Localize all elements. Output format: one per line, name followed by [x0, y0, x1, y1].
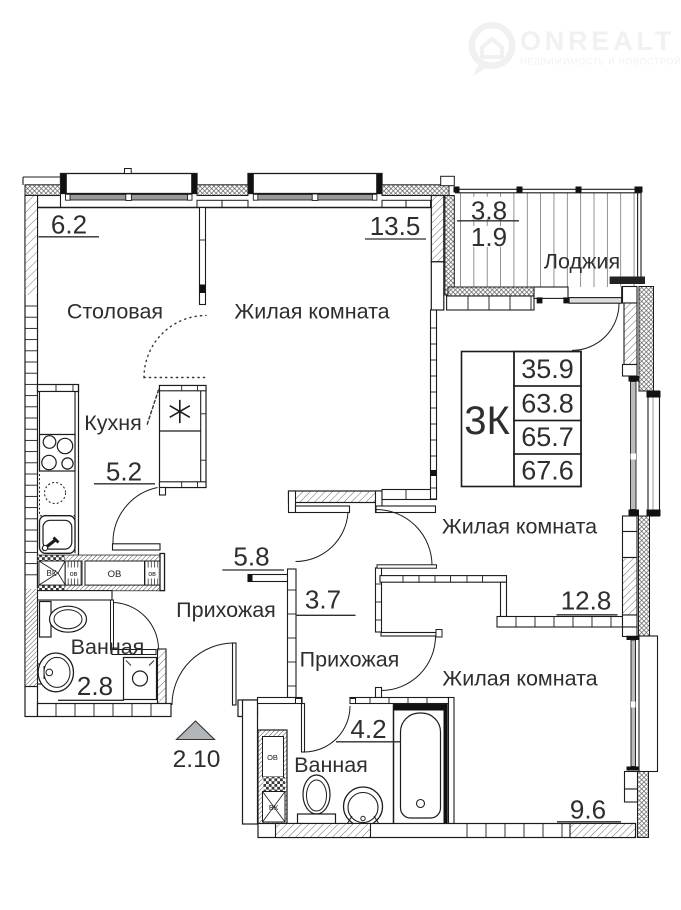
- svg-text:Жилая комната: Жилая комната: [442, 515, 597, 539]
- svg-text:Жилая комната: Жилая комната: [234, 300, 389, 324]
- svg-text:Кухня: Кухня: [84, 411, 142, 435]
- svg-text:3.7: 3.7: [305, 585, 341, 615]
- svg-text:Ванная: Ванная: [71, 635, 145, 659]
- svg-text:6.2: 6.2: [51, 210, 87, 240]
- svg-text:ов: ов: [148, 571, 156, 578]
- svg-text:ВК: ВК: [269, 803, 279, 812]
- svg-text:4.2: 4.2: [350, 714, 386, 744]
- svg-text:35.9: 35.9: [521, 354, 574, 384]
- svg-text:1.9: 1.9: [471, 222, 507, 252]
- svg-text:Прихожая: Прихожая: [300, 648, 400, 672]
- svg-text:9.6: 9.6: [570, 795, 606, 825]
- svg-text:Лоджия: Лоджия: [544, 250, 620, 274]
- svg-text:ОВ: ОВ: [267, 753, 278, 762]
- svg-text:2.10: 2.10: [173, 746, 221, 773]
- svg-text:ов: ов: [70, 571, 78, 578]
- svg-text:5.2: 5.2: [106, 457, 142, 487]
- svg-text:Жилая комната: Жилая комната: [442, 667, 597, 691]
- svg-text:67.6: 67.6: [521, 456, 574, 486]
- svg-text:Прихожая: Прихожая: [176, 598, 276, 622]
- svg-text:ВК: ВК: [47, 569, 57, 578]
- svg-text:Ванная: Ванная: [294, 753, 368, 777]
- svg-text:ОВ: ОВ: [108, 569, 122, 580]
- svg-text:НЕДВИЖИМОСТЬ И НОВОСТРОЙКИ: НЕДВИЖИМОСТЬ И НОВОСТРОЙКИ: [520, 56, 681, 67]
- svg-text:65.7: 65.7: [521, 422, 574, 452]
- svg-text:3К: 3К: [464, 399, 510, 443]
- svg-text:12.8: 12.8: [561, 586, 612, 616]
- svg-text:13.5: 13.5: [370, 211, 421, 241]
- svg-text:ONREALT: ONREALT: [520, 26, 675, 56]
- svg-text:2.8: 2.8: [77, 671, 113, 701]
- svg-text:5.8: 5.8: [233, 542, 269, 572]
- svg-text:Столовая: Столовая: [67, 300, 163, 324]
- svg-text:63.8: 63.8: [521, 389, 574, 419]
